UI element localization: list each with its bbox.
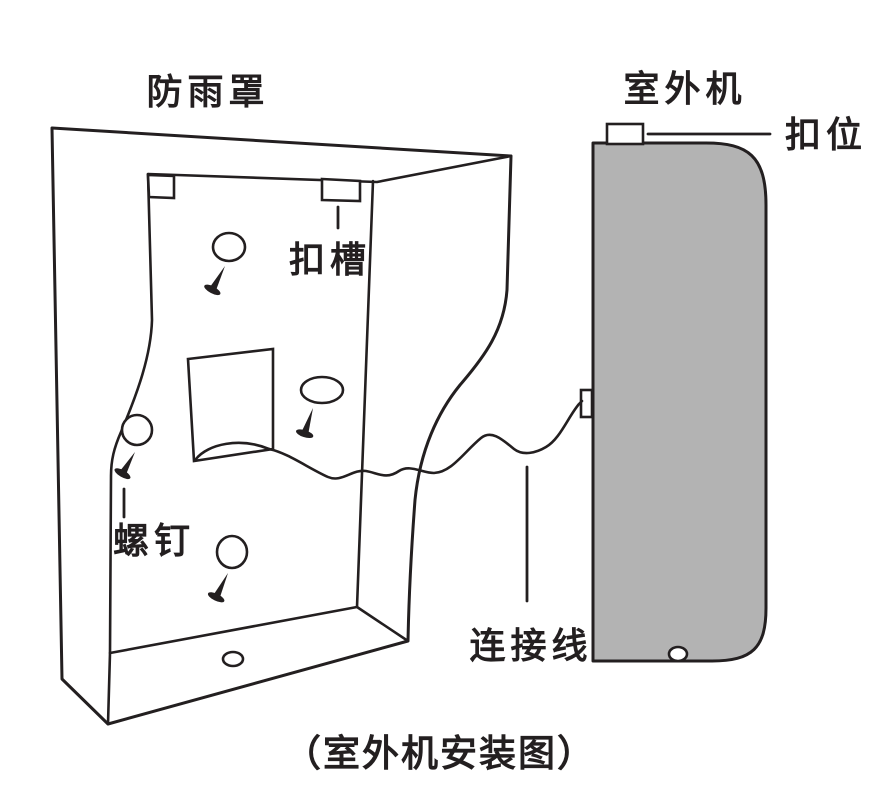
outdoor-unit-body [593,143,766,661]
diagram-canvas: 防雨罩 室外机 扣位 扣槽 螺钉 连接线 （室外机安装图） [0,0,877,785]
unit-bottom-hole [669,647,687,661]
buckle-slot-left-shape [148,175,174,198]
outdoor-unit-label: 室外机 [623,68,746,109]
screw-hole-2 [301,377,343,403]
buckle-slot-right-shape [322,179,360,201]
screw-hole-4 [217,536,247,568]
cable-label: 连接线 [469,625,592,666]
buckle-slot-label: 扣槽 [289,239,371,280]
rain-cover [52,128,511,724]
rain-cover-label: 防雨罩 [146,71,269,112]
outdoor-unit [581,124,766,661]
diagram-caption: （室外机安装图） [284,732,596,774]
rain-cover-outline [52,128,511,724]
installation-diagram: 防雨罩 室外机 扣位 扣槽 螺钉 连接线 （室外机安装图） [0,0,877,785]
buckle-tab-label: 扣位 [785,114,867,155]
cable-connector-shape [581,390,592,417]
buckle-tab-shape [607,124,643,144]
screw-hole-1 [213,233,245,261]
screw-label: 螺钉 [113,520,195,561]
lip-hole [223,652,243,666]
screw-hole-3 [122,415,152,445]
